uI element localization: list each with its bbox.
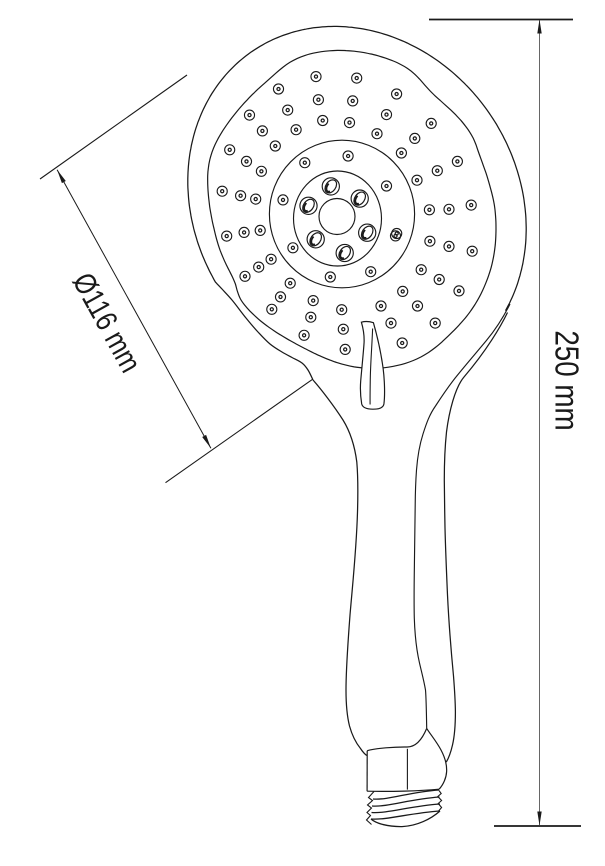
- svg-text:250 mm: 250 mm: [548, 330, 586, 430]
